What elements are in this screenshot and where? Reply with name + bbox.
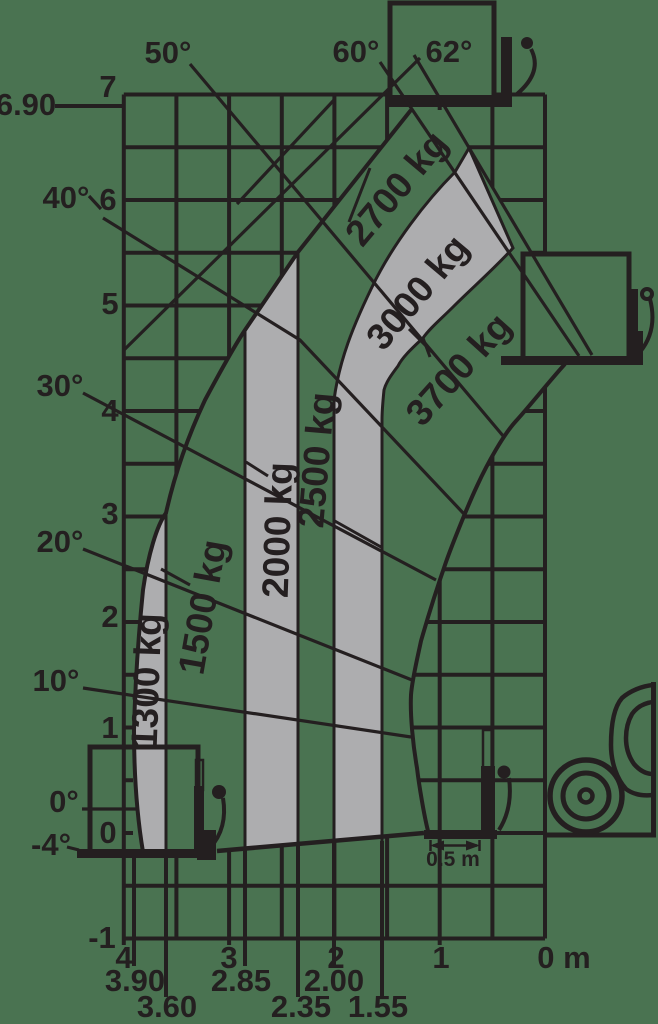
svg-text:60°: 60° xyxy=(333,34,380,69)
svg-text:30°: 30° xyxy=(37,368,84,403)
svg-text:6: 6 xyxy=(99,182,116,217)
svg-text:2.85: 2.85 xyxy=(211,963,271,998)
svg-text:7: 7 xyxy=(99,69,116,104)
svg-text:-4°: -4° xyxy=(31,827,71,862)
svg-text:-1: -1 xyxy=(88,920,116,955)
svg-text:3.60: 3.60 xyxy=(137,989,197,1024)
svg-text:1: 1 xyxy=(101,710,118,745)
svg-text:2: 2 xyxy=(101,599,118,634)
svg-text:50°: 50° xyxy=(145,35,192,70)
svg-text:3: 3 xyxy=(101,496,118,531)
svg-text:1: 1 xyxy=(432,940,449,975)
svg-text:1.55: 1.55 xyxy=(348,989,408,1024)
svg-text:6.90: 6.90 xyxy=(0,87,56,122)
svg-text:0 m: 0 m xyxy=(537,940,590,975)
svg-text:2.35: 2.35 xyxy=(271,989,331,1024)
svg-text:62°: 62° xyxy=(426,34,473,69)
svg-text:5: 5 xyxy=(101,286,118,321)
svg-text:0: 0 xyxy=(99,815,116,850)
svg-text:0.5 m: 0.5 m xyxy=(426,848,480,871)
svg-text:4: 4 xyxy=(101,393,119,428)
svg-text:40°: 40° xyxy=(43,180,90,215)
svg-text:1300 kg: 1300 kg xyxy=(124,612,170,749)
svg-text:10°: 10° xyxy=(33,663,80,698)
svg-text:0°: 0° xyxy=(49,784,79,819)
svg-text:20°: 20° xyxy=(37,524,84,559)
